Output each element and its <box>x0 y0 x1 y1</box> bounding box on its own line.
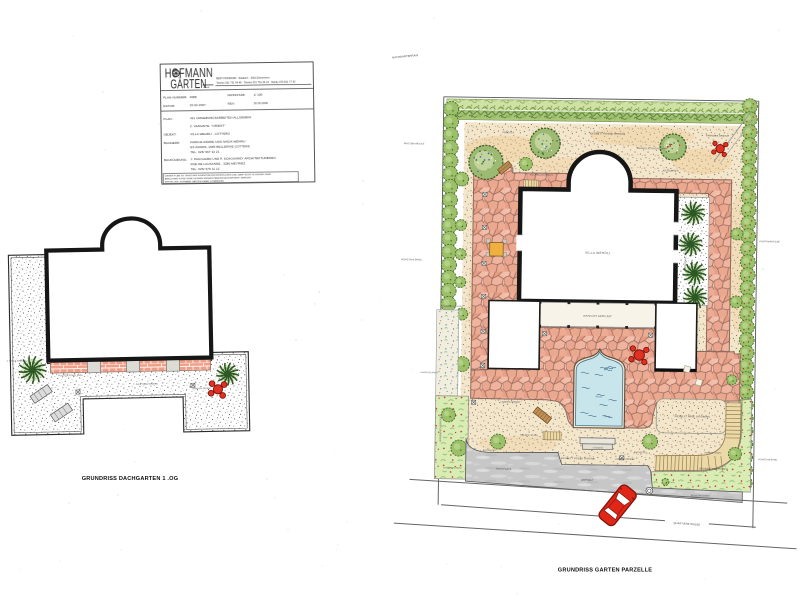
svg-text:PARKPLATZ: PARKPLATZ <box>496 467 512 471</box>
svg-text:MAGNOLIE HOCHSTAMM: MAGNOLIE HOCHSTAMM <box>637 147 668 150</box>
svg-text:ROHSTAHLBAND: ROHSTAHLBAND <box>401 258 422 261</box>
svg-text:BUCHSKUGELN HOF: BUCHSKUGELN HOF <box>530 175 554 177</box>
svg-text:30.05.2008: 30.05.2008 <box>254 101 268 105</box>
svg-text:KIESGARTEN: KIESGARTEN <box>663 169 679 172</box>
svg-text:2. VARIANTE: ''ORIENT'': 2. VARIANTE: ''ORIENT'' <box>190 124 226 129</box>
svg-text:2 TÖPFE ORIENT: 2 TÖPFE ORIENT <box>7 359 27 362</box>
svg-text:KIESBETT ROSSO VERONA: KIESBETT ROSSO VERONA <box>590 132 625 135</box>
svg-text:PHOTINIAHECKE: PHOTINIAHECKE <box>404 142 425 145</box>
svg-text:POOL: POOL <box>596 395 604 398</box>
svg-text:VILLA WEHRLI , COTTERD: VILLA WEHRLI , COTTERD <box>190 131 230 136</box>
svg-text:BAUHERR:: BAUHERR: <box>164 141 180 145</box>
svg-text:TREPPE STAHL: TREPPE STAHL <box>520 434 539 437</box>
svg-text:PLAN-NUMMER:: PLAN-NUMMER: <box>163 95 187 99</box>
svg-text:KIESBEET ROSE ZHAODENG: KIESBEET ROSE ZHAODENG <box>683 236 686 270</box>
svg-text:PLATTEN ROHB. 50/50: PLATTEN ROHB. 50/50 <box>59 374 84 377</box>
svg-text:GRUNDRISS DACHGARTEN 1 .OG: GRUNDRISS DACHGARTEN 1 .OG <box>82 476 179 482</box>
svg-text:ROHSTAHLBAND: ROHSTAHLBAND <box>444 466 463 469</box>
svg-text:LAVENDELBAND: LAVENDELBAND <box>420 371 438 374</box>
svg-text:TREPPE STAHL: TREPPE STAHL <box>704 451 722 454</box>
svg-text:DATUM:: DATUM: <box>163 104 175 108</box>
svg-text:LAMPEN ORIENT: LAMPEN ORIENT <box>501 401 522 404</box>
svg-text:BAUFÜHRUNG:: BAUFÜHRUNG: <box>164 158 187 162</box>
svg-text:RUE DE LAUSANNE , 3280 MEYRIEZ: RUE DE LAUSANNE , 3280 MEYRIEZ <box>191 161 246 166</box>
svg-text:SITZBANK: SITZBANK <box>593 446 604 449</box>
svg-text:BODENDECKERROSEN: BODENDECKERROSEN <box>699 467 728 470</box>
svg-text:PLAN:: PLAN: <box>163 117 172 121</box>
svg-text:MASSSTAB:: MASSSTAB: <box>228 93 246 97</box>
svg-text:KIESBETT ROSSO VERONA: KIESBETT ROSSO VERONA <box>561 457 595 460</box>
svg-text:STEINWACHHOLDER: STEINWACHHOLDER <box>441 305 463 308</box>
svg-text:KIESBEET ROSE ZHAODENG: KIESBEET ROSE ZHAODENG <box>675 415 711 418</box>
svg-text:4588: 4588 <box>190 95 197 99</box>
svg-text:KIES HERO BRAND: KIES HERO BRAND <box>136 382 158 385</box>
svg-text:ROHSTAHLBAND: ROHSTAHLBAND <box>758 458 777 461</box>
svg-text:1/ 100: 1/ 100 <box>254 93 263 97</box>
svg-text:ROHSTAHLBAND: ROHSTAHLBAND <box>691 494 710 497</box>
svg-text:20.02.2007: 20.02.2007 <box>190 103 206 107</box>
svg-text:VILLA WEHRLI: VILLA WEHRLI <box>585 251 610 255</box>
svg-text:PHOTINIAHECKE: PHOTINIAHECKE <box>759 240 780 243</box>
svg-text:LAMPEN ORIENT: LAMPEN ORIENT <box>192 387 212 390</box>
svg-text:ASPHALT: ASPHALT <box>581 478 594 482</box>
svg-text:PARADIES ORIENT: PARADIES ORIENT <box>706 134 729 137</box>
svg-text:BUCHS DKL.: BUCHS DKL. <box>634 452 648 454</box>
svg-text:TEL. 026/ 670 11 12: TEL. 026/ 670 11 12 <box>191 167 220 171</box>
svg-text:BODENDECKERROSEN: BODENDECKERROSEN <box>440 414 442 442</box>
svg-text:SITZPLATZ GEPFLÄST.: SITZPLATZ GEPFLÄST. <box>583 315 612 318</box>
svg-text:LAMPEN ORIENT: LAMPEN ORIENT <box>615 458 636 461</box>
svg-text:GRUNDRISS GARTEN PARZELLE: GRUNDRISS GARTEN PARZELLE <box>558 568 652 574</box>
svg-text:TEL. 026/ 667 32 21: TEL. 026/ 667 32 21 <box>190 150 219 154</box>
svg-text:GmbH: GmbH <box>203 87 209 89</box>
svg-text:REV:: REV: <box>228 102 235 106</box>
svg-text:OBJEKT:: OBJEKT: <box>164 133 177 137</box>
svg-text:PERGOLA: PERGOLA <box>502 131 514 134</box>
